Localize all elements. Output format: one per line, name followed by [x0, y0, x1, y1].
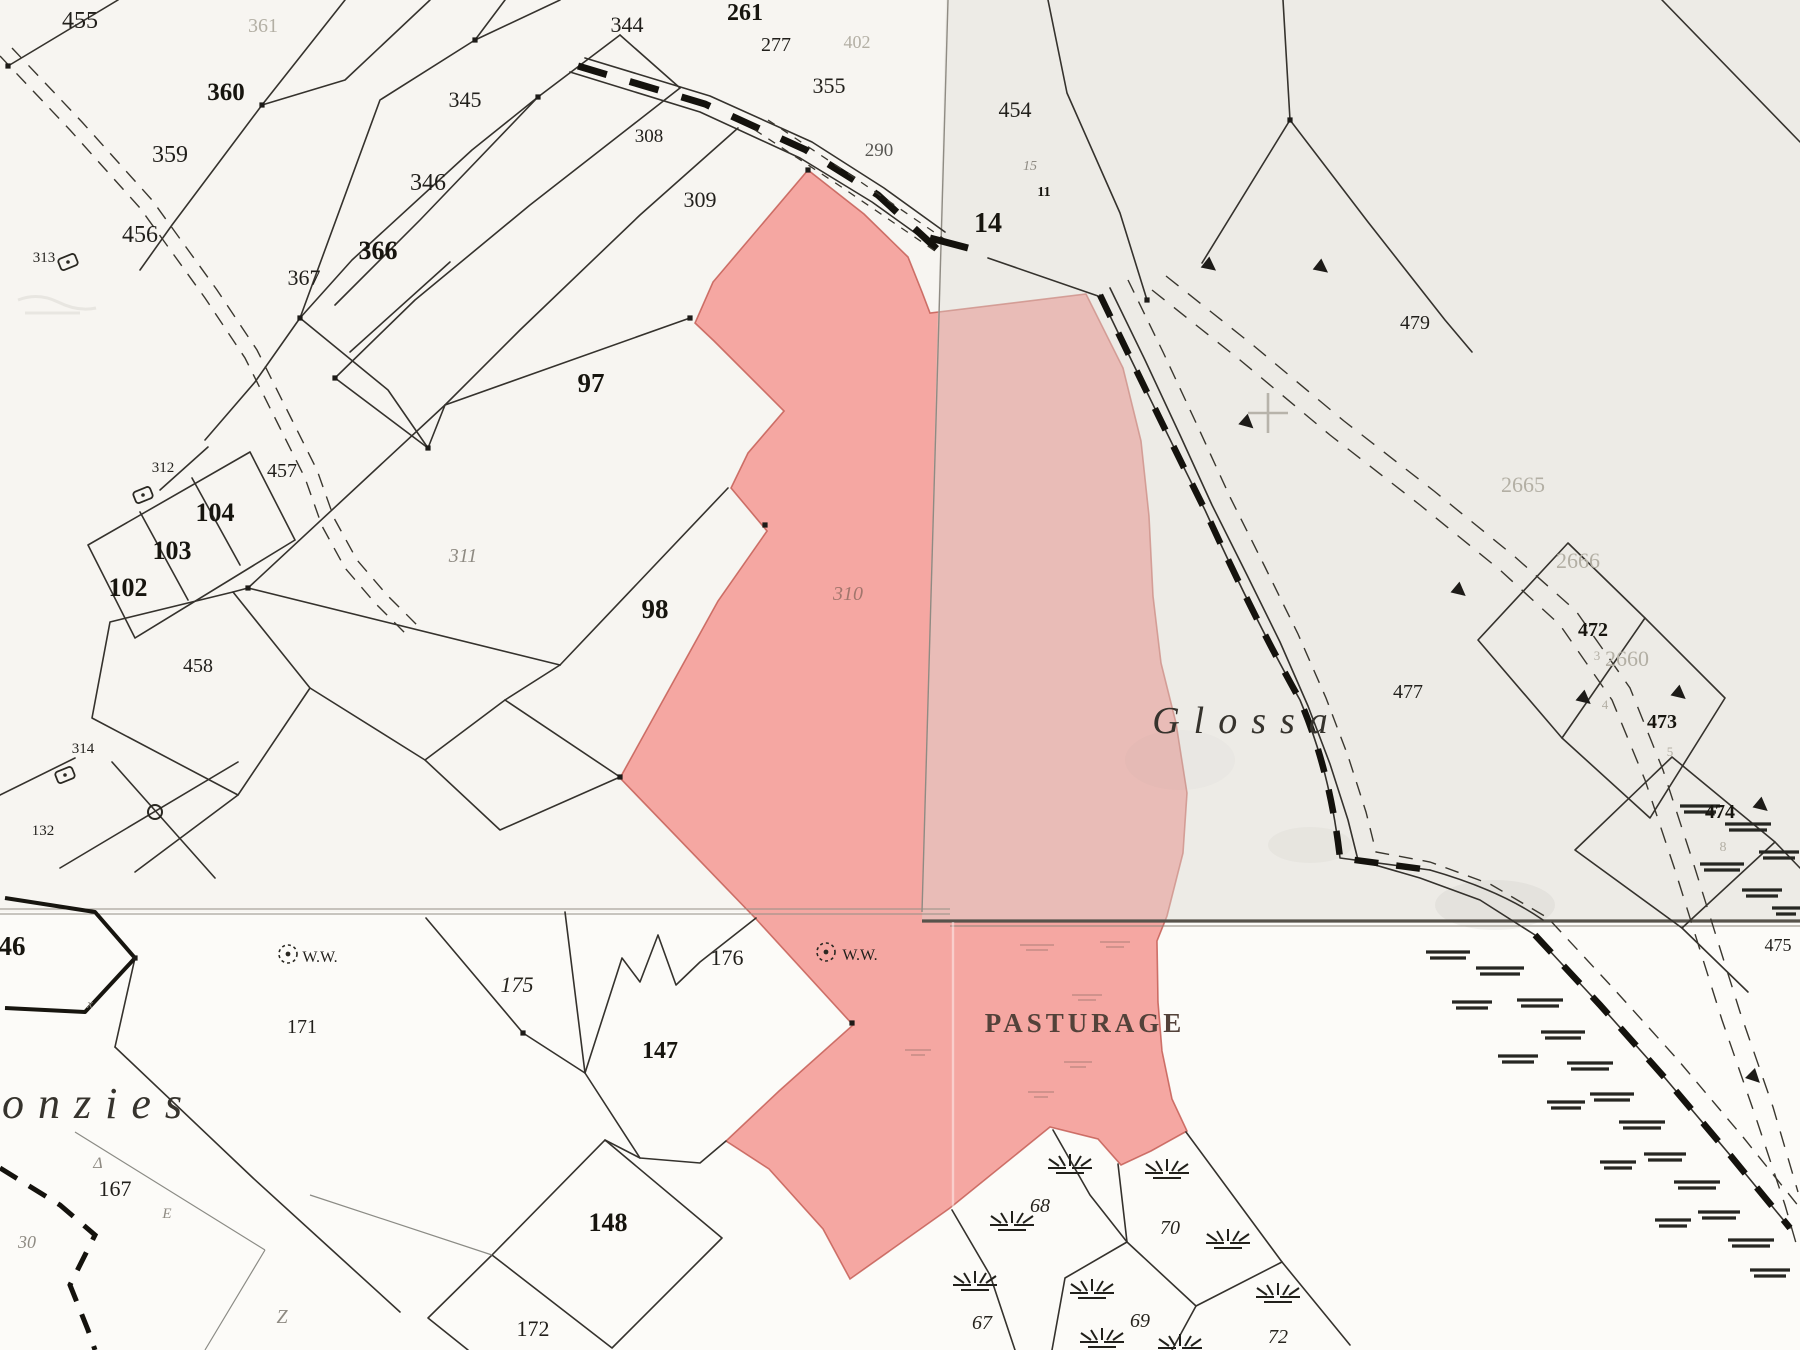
parcel-label-171: 171: [287, 1016, 317, 1038]
parcel-label-67: 67: [972, 1312, 993, 1334]
parcel-label-472: 472: [1578, 619, 1608, 641]
parcel-label-x: x: [86, 996, 93, 1011]
parcel-label-104: 104: [196, 498, 235, 527]
parcel-label-148: 148: [589, 1208, 628, 1237]
parcel-label-W.W.: W.W.: [302, 949, 337, 966]
parcel-label-46: 46: [0, 931, 26, 961]
parcel-label-97: 97: [578, 368, 605, 398]
parcel-label-15: 15: [1023, 159, 1037, 174]
parcel-label-367: 367: [288, 265, 321, 290]
survey-dot: [687, 315, 692, 320]
parcel-label-70: 70: [1160, 1217, 1180, 1239]
parcel-label-475: 475: [1765, 935, 1792, 955]
survey-dot: [245, 585, 250, 590]
parcel-label-72: 72: [1268, 1326, 1288, 1348]
survey-dot: [849, 1020, 854, 1025]
parcel-label-277: 277: [761, 34, 791, 56]
parcel-label-290: 290: [865, 140, 894, 161]
parcel-label-456: 456: [122, 222, 158, 248]
parcel-label-175: 175: [501, 972, 534, 997]
parcel-label-11: 11: [1037, 185, 1050, 200]
parcel-label-5: 5: [1667, 744, 1674, 759]
sheet-top-right-tint: [922, 0, 1800, 921]
survey-dot: [762, 522, 767, 527]
parcel-label-474: 474: [1705, 801, 1735, 823]
parcel-label-454: 454: [999, 97, 1032, 122]
survey-dot: [535, 94, 540, 99]
parcel-label-455: 455: [62, 8, 98, 34]
parcel-label-3: 3: [1594, 648, 1601, 663]
parcel-label-313: 313: [33, 250, 56, 266]
parcel-label-102: 102: [109, 573, 148, 602]
parcel-label-PASTURAGE: PASTURAGE: [985, 1008, 1186, 1038]
survey-dot: [1144, 297, 1149, 302]
parcel-label-361: 361: [248, 15, 278, 37]
survey-dot: [520, 1030, 525, 1035]
parcel-label-366: 366: [359, 236, 398, 265]
parcel-label-310: 310: [832, 583, 863, 605]
parcel-label-167: 167: [99, 1176, 132, 1201]
parcel-label-4: 4: [1602, 697, 1609, 712]
parcel-label-Glossa: Glossa: [1152, 700, 1342, 742]
parcel-label-2660: 2660: [1605, 646, 1649, 671]
parcel-label-402: 402: [844, 32, 871, 52]
parcel-label-312: 312: [152, 460, 175, 476]
parcel-label-309: 309: [684, 187, 717, 212]
parcel-label-30: 30: [17, 1232, 36, 1252]
survey-dot: [297, 315, 302, 320]
parcel-label-457: 457: [267, 460, 297, 482]
survey-dot: [5, 63, 10, 68]
survey-dot: [1287, 117, 1292, 122]
parcel-label-68: 68: [1030, 1195, 1050, 1217]
survey-dot: [132, 955, 137, 960]
parcel-label-132: 132: [32, 823, 55, 839]
parcel-label-W.W.: W.W.: [842, 947, 877, 964]
map-canvas[interactable]: 4553613603594563133663673463453443083092…: [0, 0, 1800, 1350]
parcel-label-172: 172: [517, 1316, 550, 1341]
parcel-label-98: 98: [642, 594, 669, 624]
parcel-label-Z: Z: [276, 1306, 288, 1328]
parcel-label-147: 147: [642, 1038, 678, 1064]
parcel-label-69: 69: [1130, 1310, 1150, 1332]
cadastral-map[interactable]: 4553613603594563133663673463453443083092…: [0, 0, 1800, 1350]
parcel-label-E: E: [161, 1206, 171, 1222]
parcel-label-311: 311: [448, 545, 478, 567]
survey-dot: [425, 445, 430, 450]
survey-dot: [332, 375, 337, 380]
parcel-label-103: 103: [153, 536, 192, 565]
survey-dot: [472, 37, 477, 42]
parcel-label-477: 477: [1393, 681, 1423, 703]
parcel-label-473: 473: [1647, 711, 1677, 733]
parcel-label-458: 458: [183, 655, 213, 677]
survey-dot: [617, 774, 622, 779]
parcel-label-261: 261: [727, 0, 763, 26]
parcel-label-359: 359: [152, 142, 188, 168]
parcel-label-Δ: Δ: [92, 1155, 102, 1172]
parcel-label-345: 345: [449, 87, 482, 112]
parcel-label-314: 314: [72, 741, 95, 757]
parcel-label-2666: 2666: [1556, 548, 1600, 573]
parcel-label-308: 308: [635, 126, 664, 147]
parcel-label-2665: 2665: [1501, 472, 1545, 497]
parcel-label-360: 360: [207, 79, 245, 106]
parcel-label-355: 355: [813, 73, 846, 98]
parcel-label-onzies: onzies: [2, 1079, 196, 1128]
parcel-label-176: 176: [711, 945, 744, 970]
survey-dot: [805, 167, 810, 172]
parcel-label-8: 8: [1720, 840, 1727, 855]
parcel-label-14: 14: [974, 208, 1002, 239]
parcel-label-479: 479: [1400, 312, 1430, 334]
parcel-label-346: 346: [410, 170, 446, 196]
survey-dot: [259, 102, 264, 107]
parcel-label-344: 344: [611, 12, 644, 37]
